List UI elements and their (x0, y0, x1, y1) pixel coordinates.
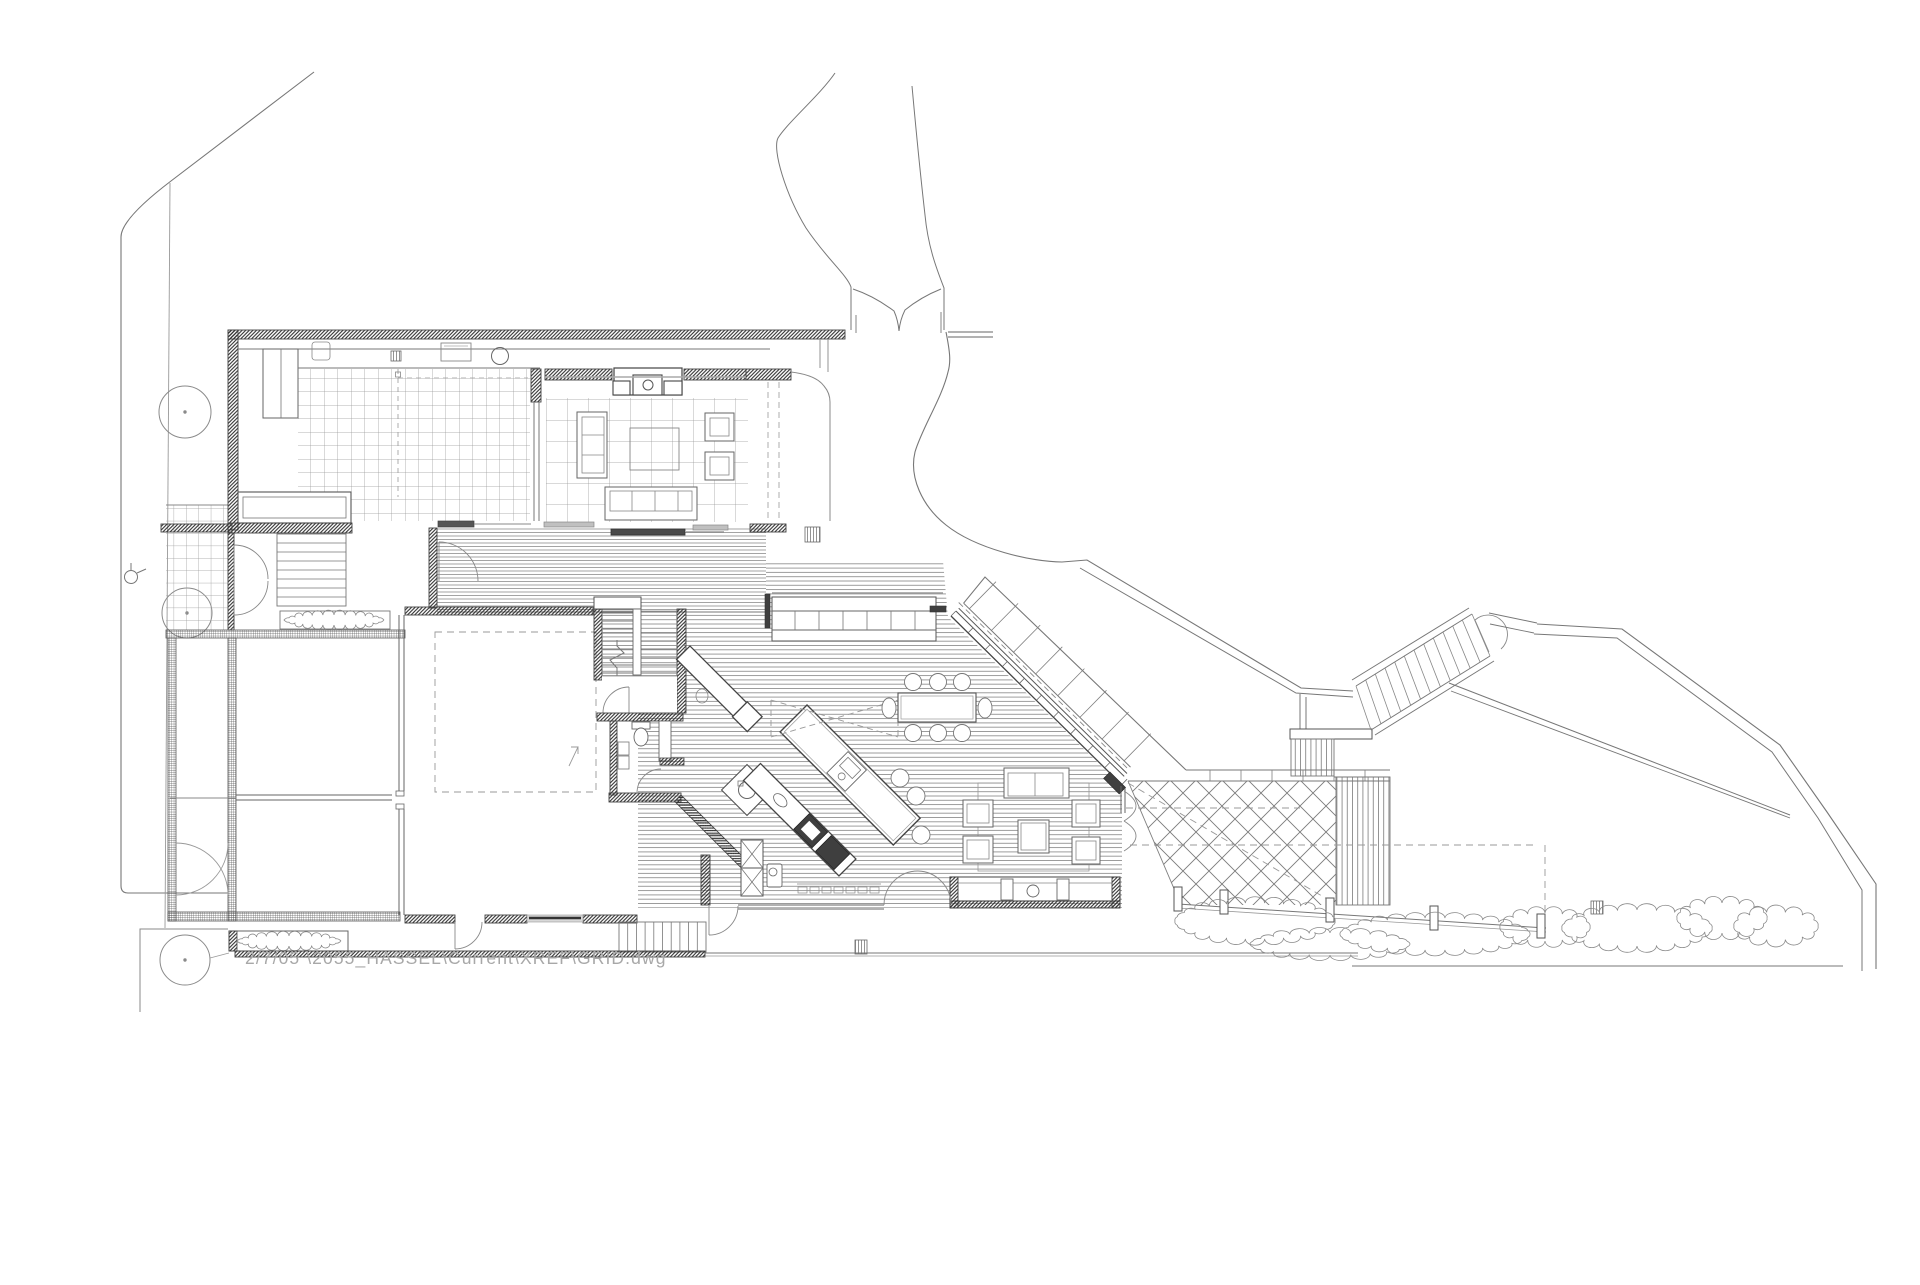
svg-text:2/7/05 \2055_HASSEL\Current\X: 2/7/05 \2055_HASSEL\Current\XREF\GRID.dw… (245, 948, 667, 969)
